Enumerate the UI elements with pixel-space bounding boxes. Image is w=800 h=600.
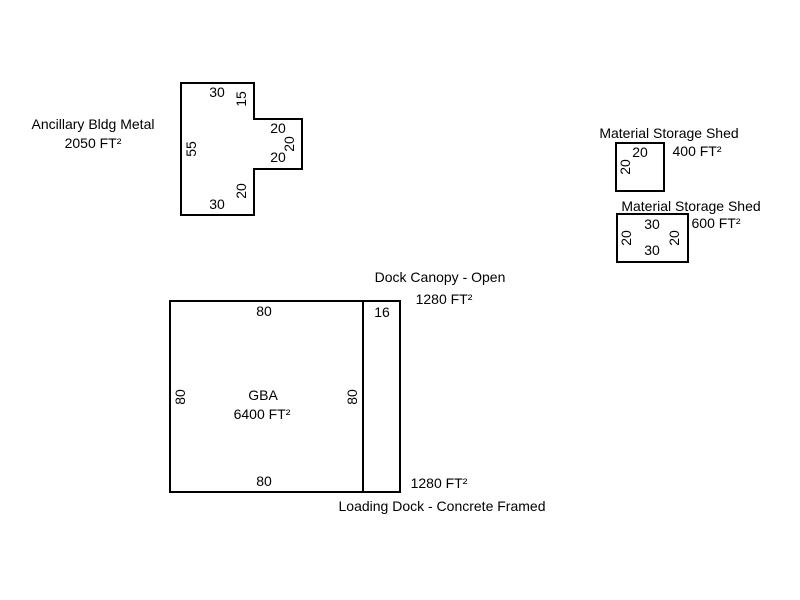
dock-strip-outline <box>363 301 400 492</box>
sketch-canvas: Ancillary Bldg Metal 2050 FT² 30 15 20 2… <box>0 0 800 600</box>
shed-400-dim-top: 20 <box>632 144 648 160</box>
dock-canopy-area: 1280 FT² <box>416 291 473 307</box>
shed-600-dim-bottom: 30 <box>644 242 660 258</box>
shed-600-name: Material Storage Shed <box>621 198 760 214</box>
gba-dim-right: 80 <box>344 389 360 405</box>
shed-600-dim-left: 20 <box>618 230 634 246</box>
gba-dim-left: 80 <box>172 389 188 405</box>
ancillary-dim-top: 30 <box>209 84 225 100</box>
shed-600-dim-right: 20 <box>666 230 682 246</box>
shed-400-name: Material Storage Shed <box>599 125 738 141</box>
ancillary-name: Ancillary Bldg Metal <box>32 116 155 132</box>
ancillary-dim-bottom: 30 <box>209 196 225 212</box>
shed-600-area: 600 FT² <box>691 215 740 231</box>
ancillary-dim-right-upper: 15 <box>233 91 249 107</box>
loading-dock-name: Loading Dock - Concrete Framed <box>339 498 546 514</box>
loading-dock-area: 1280 FT² <box>411 475 468 491</box>
dock-canopy-name: Dock Canopy - Open <box>375 269 506 285</box>
gba-area: 6400 FT² <box>234 406 291 422</box>
ancillary-dim-right-lower: 20 <box>233 183 249 199</box>
dock-strip-dim-width: 16 <box>374 304 390 320</box>
gba-name: GBA <box>248 387 278 403</box>
shed-600-dim-top: 30 <box>644 216 660 232</box>
gba-dim-bottom: 80 <box>256 473 272 489</box>
ancillary-dim-notch-top: 20 <box>270 120 286 136</box>
shed-400-area: 400 FT² <box>672 143 721 159</box>
shed-400-dim-left: 20 <box>617 159 633 175</box>
ancillary-dim-notch-bottom: 20 <box>270 149 286 165</box>
ancillary-area: 2050 FT² <box>65 135 122 151</box>
gba-dim-top: 80 <box>256 303 272 319</box>
ancillary-dim-left: 55 <box>183 141 199 157</box>
